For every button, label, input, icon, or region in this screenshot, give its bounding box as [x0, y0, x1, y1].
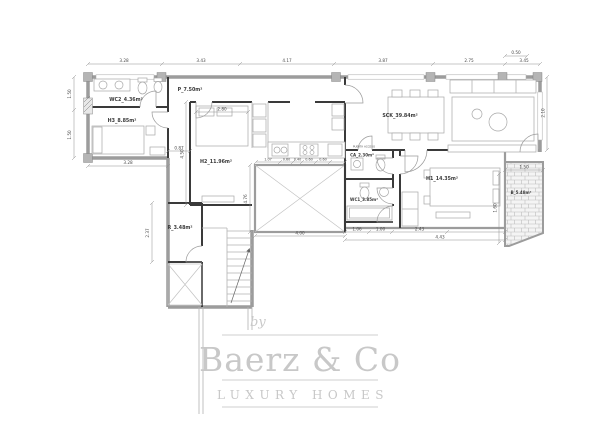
bidet-tank: [154, 78, 162, 82]
dim-label: 3.43: [196, 58, 206, 63]
toilet-tank: [138, 78, 147, 82]
door-sck: [345, 85, 363, 103]
wall-r-room: [168, 203, 202, 307]
dim-label: 3.87: [378, 58, 388, 63]
room-label-b: B_5.48m²: [511, 190, 532, 195]
closet: [253, 104, 266, 117]
door-h1: [400, 156, 418, 174]
closet: [253, 119, 266, 132]
chair: [392, 90, 402, 97]
floor-plan-drawing: 3.28 3.43 4.17 3.87 2.75 3.45 0.50 1.50 …: [0, 0, 600, 424]
nightstand: [424, 196, 430, 204]
patio: [255, 165, 345, 232]
dim-line-left: [72, 75, 76, 160]
dim-label: 4.17: [282, 58, 292, 63]
chair: [410, 90, 420, 97]
dim-label: 1.60: [493, 203, 498, 213]
pillow: [493, 189, 499, 203]
dim-label: 1.50: [519, 165, 529, 170]
sofa: [450, 80, 536, 93]
dim-line-left-lower: [150, 201, 154, 264]
dim-label: 3.45: [519, 58, 529, 63]
dim-label: 1.06: [352, 227, 362, 232]
sink-bowl: [274, 147, 280, 153]
dim-label: 2.80: [217, 107, 227, 112]
bed: [430, 168, 500, 206]
dim-line-sck-right: [545, 75, 549, 152]
burner: [303, 146, 307, 150]
chair: [392, 133, 402, 140]
pillar: [84, 73, 93, 82]
oven-column: [332, 104, 344, 116]
dim-label: 3.28: [123, 160, 133, 165]
door-r: [186, 246, 202, 262]
pillar: [426, 73, 435, 82]
stove: [300, 144, 318, 156]
room-label-h3: H3_8.85m²: [108, 118, 137, 124]
entry-label: PUERTA ACCESO: [353, 145, 375, 149]
nightstand: [146, 126, 155, 135]
door-h3: [152, 112, 168, 128]
wall-stairs-left: [202, 228, 227, 307]
dim-label: 1.00: [376, 227, 386, 232]
door-vestibule: [405, 150, 427, 172]
stair-treads: [227, 231, 252, 301]
dim-line-h2-left: [184, 100, 188, 207]
dim-label: 0.60: [319, 158, 327, 162]
patio-cross-hatch: [255, 165, 345, 232]
closet: [253, 134, 266, 147]
room-label-wc2: WC2_4.36m²: [109, 97, 142, 103]
dim-label: 1.07: [264, 158, 272, 162]
sink-basin: [115, 81, 123, 89]
dim-label: 4.43: [435, 235, 445, 240]
h3-furniture: [92, 126, 165, 155]
dim-label: 0.40: [294, 158, 302, 162]
dim-line-mid-total: [343, 238, 507, 242]
dresser: [150, 147, 165, 155]
watermark-by: by: [250, 315, 266, 330]
room-label-r: R_3.48m²: [167, 225, 192, 231]
bench: [436, 212, 470, 218]
dim-label: 0.60: [305, 158, 313, 162]
wall-section-hatch: [84, 96, 93, 114]
oven-column: [332, 118, 344, 130]
pillar: [84, 154, 93, 163]
dim-label: 2.43: [415, 227, 425, 232]
room-label-sck: SCK_39.84m²: [382, 113, 417, 119]
window: [348, 75, 424, 79]
chair: [410, 133, 420, 140]
wall-segment: [168, 158, 252, 307]
dim-line-mid: [343, 230, 507, 234]
sink-basin: [353, 160, 360, 167]
stair-arrow: [231, 250, 249, 303]
terrace-brick-area: [505, 162, 543, 246]
room-label-wc1: WC1_3.85m²: [350, 197, 378, 202]
side-table: [472, 109, 482, 119]
dim-line-patio-left: [248, 163, 252, 234]
room-label-h2: H2_11.96m²: [200, 159, 232, 165]
room-label-ca: CA_2.30m²: [350, 153, 374, 158]
dim-label: 3.28: [119, 58, 129, 63]
floor-plan-page: 3.28 3.43 4.17 3.87 2.75 3.45 0.50 1.50 …: [0, 0, 600, 424]
burner: [303, 151, 307, 155]
coffee-table: [489, 113, 507, 131]
dim-label: 2.37: [145, 228, 150, 238]
sink-bowl: [281, 147, 287, 153]
pillow: [93, 127, 102, 153]
dim-label: 1.50: [67, 130, 72, 140]
sink-basin: [380, 188, 389, 197]
watermark-brand: Baerz & Co: [199, 340, 401, 379]
dim-label: 0.50: [511, 50, 521, 55]
window: [446, 75, 526, 79]
dim-label: 1.50: [67, 89, 72, 99]
dim-label: 4.76: [243, 194, 248, 204]
fridge: [328, 144, 342, 156]
dim-label: 2.10: [541, 108, 546, 118]
shaft-cross: [168, 264, 202, 305]
watermark-tagline: LUXURY HOMES: [217, 388, 389, 402]
chair: [428, 133, 438, 140]
toilet-icon: [138, 82, 147, 94]
watermark: by Baerz & Co LUXURY HOMES: [199, 315, 401, 407]
dim-label: 4.50: [180, 149, 185, 159]
burner: [310, 151, 314, 155]
room-label-p: P_7.50m²: [178, 87, 203, 93]
kitchen-counter: [268, 104, 345, 158]
dim-label: 4.00: [295, 231, 305, 236]
pillar: [332, 73, 341, 82]
toilet-tank: [360, 183, 369, 187]
terrace: [505, 162, 543, 246]
room-label-h1: H1_14.35m²: [426, 176, 458, 182]
dim-label: 0.60: [283, 158, 291, 162]
stairs: [227, 231, 252, 303]
pillow: [493, 171, 499, 185]
bench: [202, 196, 234, 202]
chair: [428, 90, 438, 97]
dim-label: 2.75: [464, 58, 474, 63]
burner: [310, 146, 314, 150]
sideboard: [448, 145, 536, 152]
furniture: [92, 78, 536, 226]
sink-basin: [99, 81, 107, 89]
